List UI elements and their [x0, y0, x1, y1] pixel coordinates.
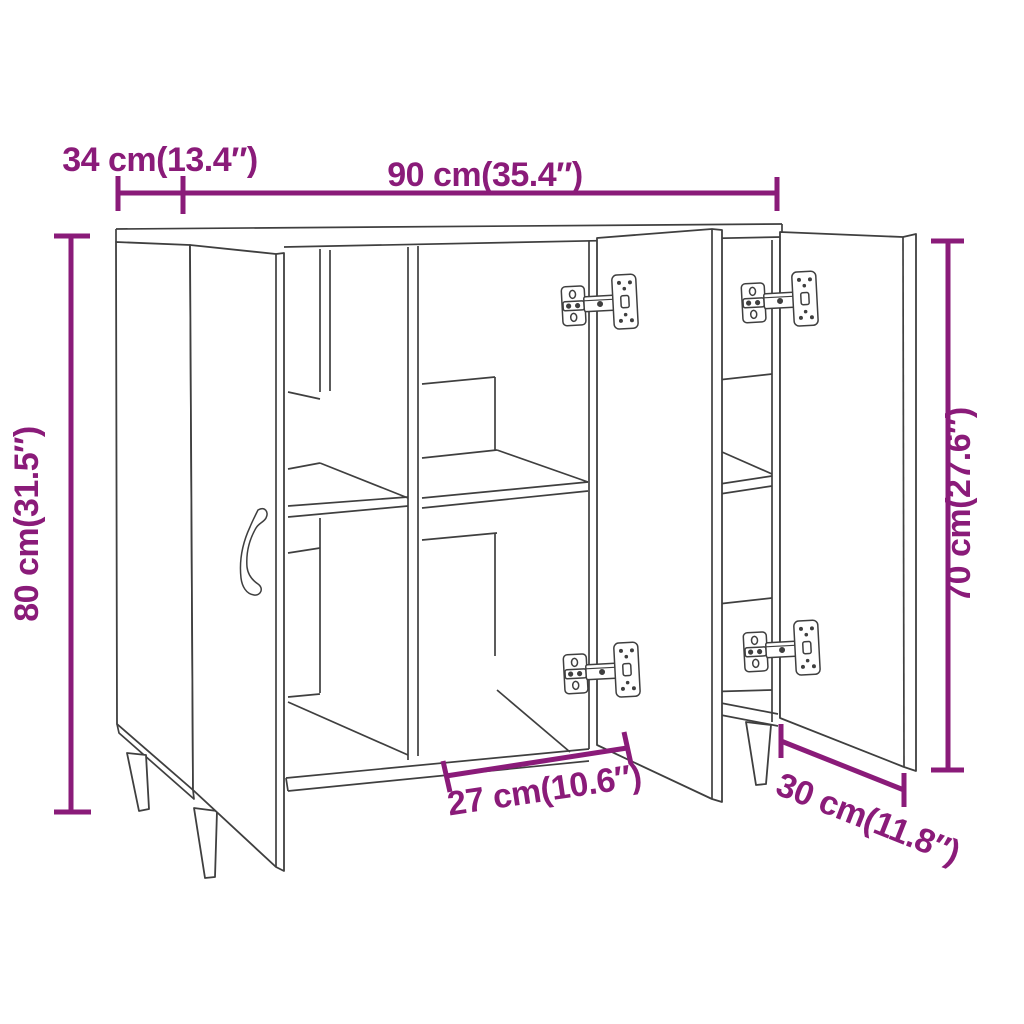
left-door: [190, 245, 284, 871]
dimension-label-width-top: 90 cm(35.4″): [387, 156, 583, 194]
leg-back-left: [127, 753, 149, 811]
dimension-top: 34 cm(13.4″) 90 cm(35.4″): [62, 141, 777, 214]
dimension-diagram: 34 cm(13.4″) 90 cm(35.4″) 80 cm(31.5″) 7…: [0, 0, 1024, 1024]
dimension-label-depth-top: 34 cm(13.4″): [62, 141, 258, 179]
dimension-label-height-right: 70 cm(27.6″): [940, 407, 978, 603]
left-side-panel: [116, 242, 194, 799]
dimension-label-height-left: 80 cm(31.5″): [8, 426, 46, 622]
leg-front-left: [194, 808, 217, 878]
dimension-height-right: 70 cm(27.6″): [931, 241, 978, 770]
leg-middle: [746, 722, 771, 785]
dimension-height-left: 80 cm(31.5″): [8, 236, 91, 812]
dimension-label-bottom-left: 27 cm(10.6″): [445, 757, 644, 823]
dimension-label-bottom-right: 30 cm(11.8″): [771, 766, 965, 872]
